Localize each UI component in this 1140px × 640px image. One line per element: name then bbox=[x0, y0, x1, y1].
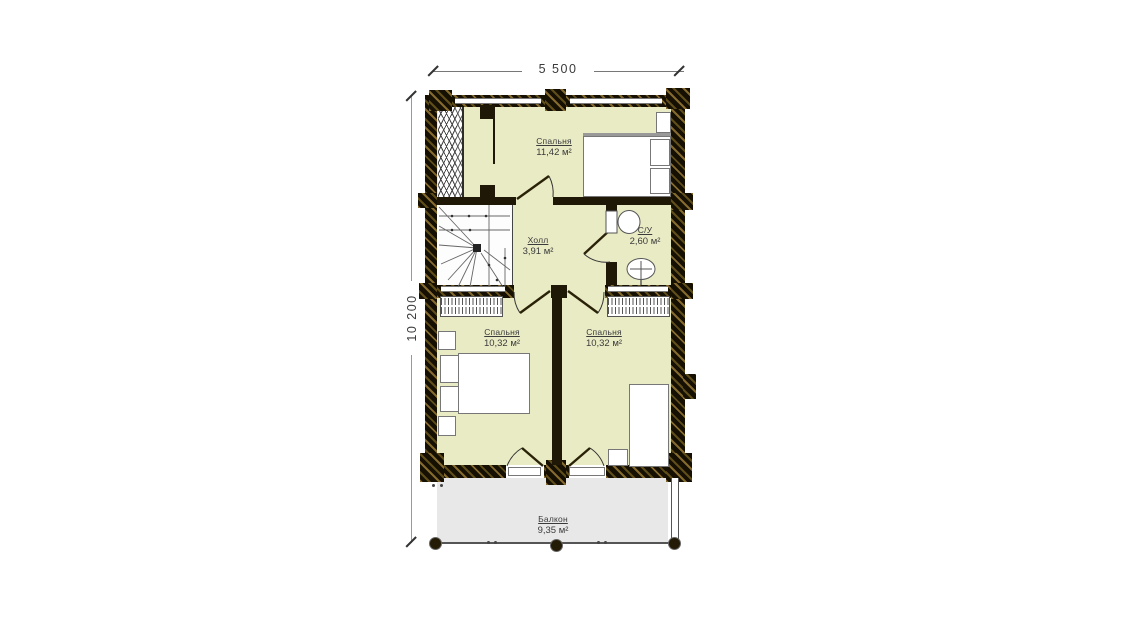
dimension-width-label: 5 500 bbox=[522, 62, 594, 76]
pilaster bbox=[683, 374, 696, 399]
railing-dot bbox=[432, 484, 435, 487]
window bbox=[455, 98, 541, 104]
room-name: Балкон bbox=[498, 515, 608, 525]
railing-dot bbox=[597, 541, 600, 544]
nightstand bbox=[656, 112, 671, 133]
pillow bbox=[650, 168, 670, 194]
room-name: Холл bbox=[483, 236, 593, 246]
wall-between-bedrooms bbox=[552, 296, 562, 465]
pillow bbox=[440, 386, 459, 412]
balcony-railing-side bbox=[671, 478, 679, 542]
pillow bbox=[440, 355, 459, 383]
window bbox=[608, 286, 668, 292]
room-label-bedroom-right: Спальня 10,32 м² bbox=[549, 328, 659, 350]
room-name: С/У bbox=[590, 226, 700, 236]
room-area: 9,35 м² bbox=[498, 526, 608, 537]
pillow bbox=[650, 139, 670, 166]
double-bed bbox=[458, 353, 530, 414]
pilaster bbox=[545, 89, 566, 111]
railing-post bbox=[668, 537, 681, 550]
railing-dot bbox=[604, 541, 607, 544]
floor-plan: Спальня 11,42 м² Холл 3,91 м² С/У 2,60 м… bbox=[0, 0, 1140, 640]
railing-post bbox=[429, 537, 442, 550]
window bbox=[441, 286, 505, 292]
pilaster bbox=[671, 193, 693, 210]
room-label-bedroom-top: Спальня 11,42 м² bbox=[499, 137, 609, 159]
pilaster bbox=[429, 90, 452, 111]
radiator bbox=[607, 296, 670, 317]
railing-dot bbox=[487, 541, 490, 544]
room-area: 10,32 м² bbox=[549, 339, 659, 350]
wall-bathroom-upper bbox=[606, 197, 617, 228]
railing-post bbox=[550, 539, 563, 552]
radiator bbox=[440, 296, 503, 317]
room-label-bedroom-left: Спальня 10,32 м² bbox=[447, 328, 557, 350]
railing-dot bbox=[494, 541, 497, 544]
room-label-balcony: Балкон 9,35 м² bbox=[498, 515, 608, 537]
pilaster bbox=[666, 453, 692, 482]
nightstand bbox=[608, 449, 628, 466]
room-name: Спальня bbox=[447, 328, 557, 338]
pilaster bbox=[418, 193, 437, 208]
balcony-door-sill bbox=[569, 467, 605, 476]
room-area: 11,42 м² bbox=[499, 148, 609, 159]
pilaster bbox=[420, 453, 444, 482]
wall-bathroom-lower bbox=[606, 262, 617, 285]
room-name: Спальня bbox=[499, 137, 609, 147]
closet-wall-stub bbox=[480, 105, 495, 119]
room-area: 10,32 м² bbox=[447, 339, 557, 350]
room-label-bathroom: С/У 2,60 м² bbox=[590, 226, 700, 248]
balcony-door-sill bbox=[508, 467, 541, 476]
nightstand bbox=[438, 416, 456, 436]
room-label-hall: Холл 3,91 м² bbox=[483, 236, 593, 258]
single-bed bbox=[629, 384, 669, 467]
pilaster bbox=[666, 88, 690, 109]
room-area: 2,60 м² bbox=[590, 237, 700, 248]
room-area: 3,91 м² bbox=[483, 247, 593, 258]
closet-partition bbox=[493, 118, 495, 164]
wall-hall-bedroom-top-left bbox=[437, 197, 516, 205]
pilaster bbox=[671, 283, 693, 299]
pilaster bbox=[417, 283, 437, 299]
railing-dot bbox=[440, 484, 443, 487]
dimension-height-label: 10 200 bbox=[405, 281, 419, 355]
closet-wall-stub bbox=[480, 185, 495, 200]
closet-hatch-strip bbox=[438, 107, 464, 197]
window bbox=[570, 98, 662, 104]
room-name: Спальня bbox=[549, 328, 659, 338]
